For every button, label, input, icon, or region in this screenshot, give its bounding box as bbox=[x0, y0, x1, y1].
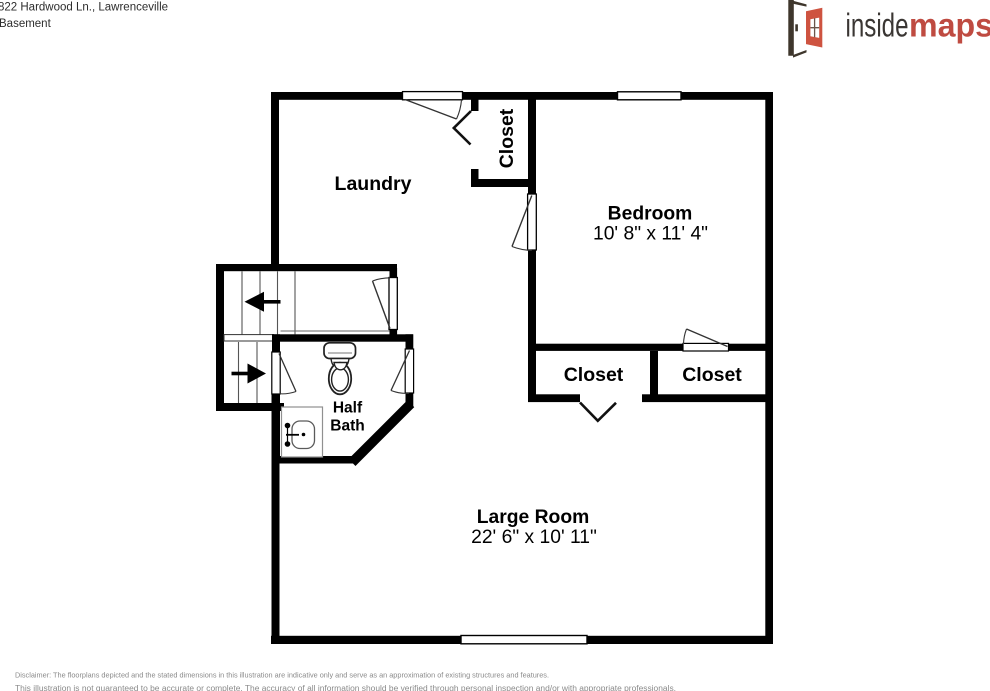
svg-text:822 Hardwood Ln., Lawrencevill: 822 Hardwood Ln., Lawrenceville bbox=[0, 2, 168, 14]
svg-text:Closet: Closet bbox=[682, 364, 742, 386]
svg-text:maps: maps bbox=[909, 7, 990, 44]
svg-text:Half: Half bbox=[333, 400, 363, 417]
svg-text:Closet: Closet bbox=[496, 108, 518, 168]
svg-text:Closet: Closet bbox=[564, 364, 624, 386]
svg-text:Bath: Bath bbox=[330, 418, 364, 435]
svg-text:Laundry: Laundry bbox=[335, 173, 412, 195]
svg-text:inside: inside bbox=[846, 7, 909, 44]
svg-text:Bedroom: Bedroom bbox=[608, 204, 693, 225]
svg-text:Basement: Basement bbox=[0, 18, 52, 30]
svg-text:This illustration is not guara: This illustration is not guaranteed to b… bbox=[15, 684, 676, 691]
svg-text:Large Room: Large Room bbox=[477, 507, 590, 528]
svg-text:10' 8" x 11' 4": 10' 8" x 11' 4" bbox=[593, 224, 708, 245]
svg-text:Disclaimer: The floorplans dep: Disclaimer: The floorplans depicted and … bbox=[15, 671, 549, 680]
svg-text:22' 6" x 10' 11": 22' 6" x 10' 11" bbox=[471, 527, 597, 548]
